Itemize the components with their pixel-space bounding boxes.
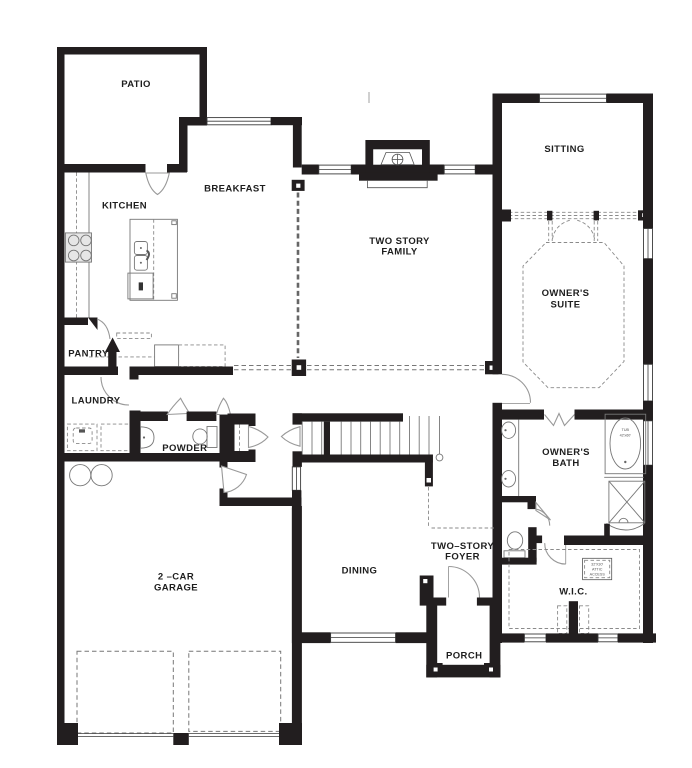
svg-text:W.I.C.: W.I.C. (559, 587, 587, 598)
svg-text:PANTRY: PANTRY (68, 349, 109, 360)
svg-text:BREAKFAST: BREAKFAST (204, 184, 266, 195)
svg-text:42'x60': 42'x60' (620, 434, 632, 438)
svg-text:SUITE: SUITE (551, 300, 581, 311)
svg-text:SITTING: SITTING (544, 144, 584, 155)
svg-text:2 –CAR: 2 –CAR (158, 572, 194, 583)
svg-text:PATIO: PATIO (121, 79, 151, 90)
svg-text:BATH: BATH (552, 458, 579, 469)
svg-text:FOYER: FOYER (445, 552, 480, 563)
svg-text:ATTIC: ATTIC (592, 568, 603, 572)
svg-text:DINING: DINING (342, 566, 378, 577)
svg-text:PORCH: PORCH (446, 651, 482, 662)
svg-text:KITCHEN: KITCHEN (102, 201, 147, 212)
svg-text:GARAGE: GARAGE (154, 583, 198, 594)
svg-text:FAMILY: FAMILY (381, 247, 418, 258)
svg-text:TWO–STORY: TWO–STORY (431, 541, 495, 552)
svg-text:OWNER'S: OWNER'S (542, 288, 590, 299)
svg-text:32'X30': 32'X30' (591, 563, 603, 567)
svg-text:OWNER'S: OWNER'S (542, 447, 590, 458)
svg-text:LAUNDRY: LAUNDRY (72, 396, 121, 407)
svg-text:TUB: TUB (622, 428, 630, 432)
svg-text:POWDER: POWDER (162, 443, 207, 454)
svg-text:ACCESS: ACCESS (590, 573, 606, 577)
svg-text:TWO STORY: TWO STORY (369, 236, 430, 247)
